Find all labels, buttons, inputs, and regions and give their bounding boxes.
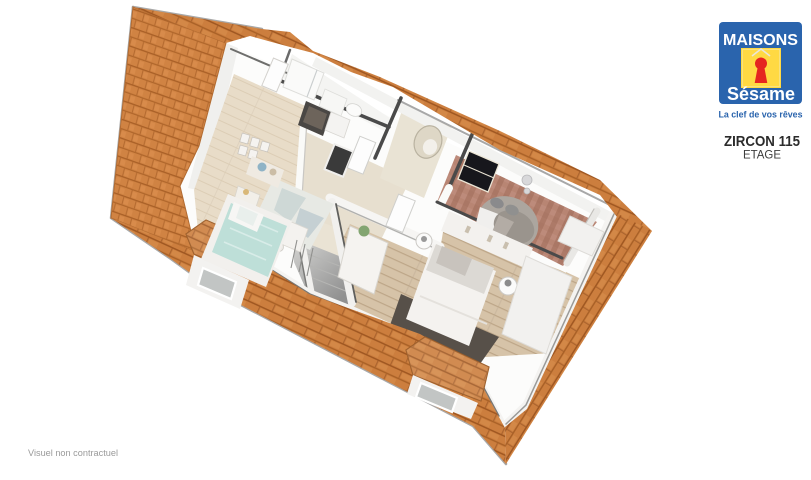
svg-text:Sésame: Sésame [727, 83, 795, 104]
svg-text:La clef de vos rêves: La clef de vos rêves [719, 110, 803, 120]
svg-text:Visuel non contractuel: Visuel non contractuel [28, 448, 118, 459]
svg-text:ZIRCON 115: ZIRCON 115 [724, 133, 800, 150]
svg-text:ETAGE: ETAGE [743, 150, 781, 162]
svg-text:MAISONS: MAISONS [723, 32, 798, 49]
